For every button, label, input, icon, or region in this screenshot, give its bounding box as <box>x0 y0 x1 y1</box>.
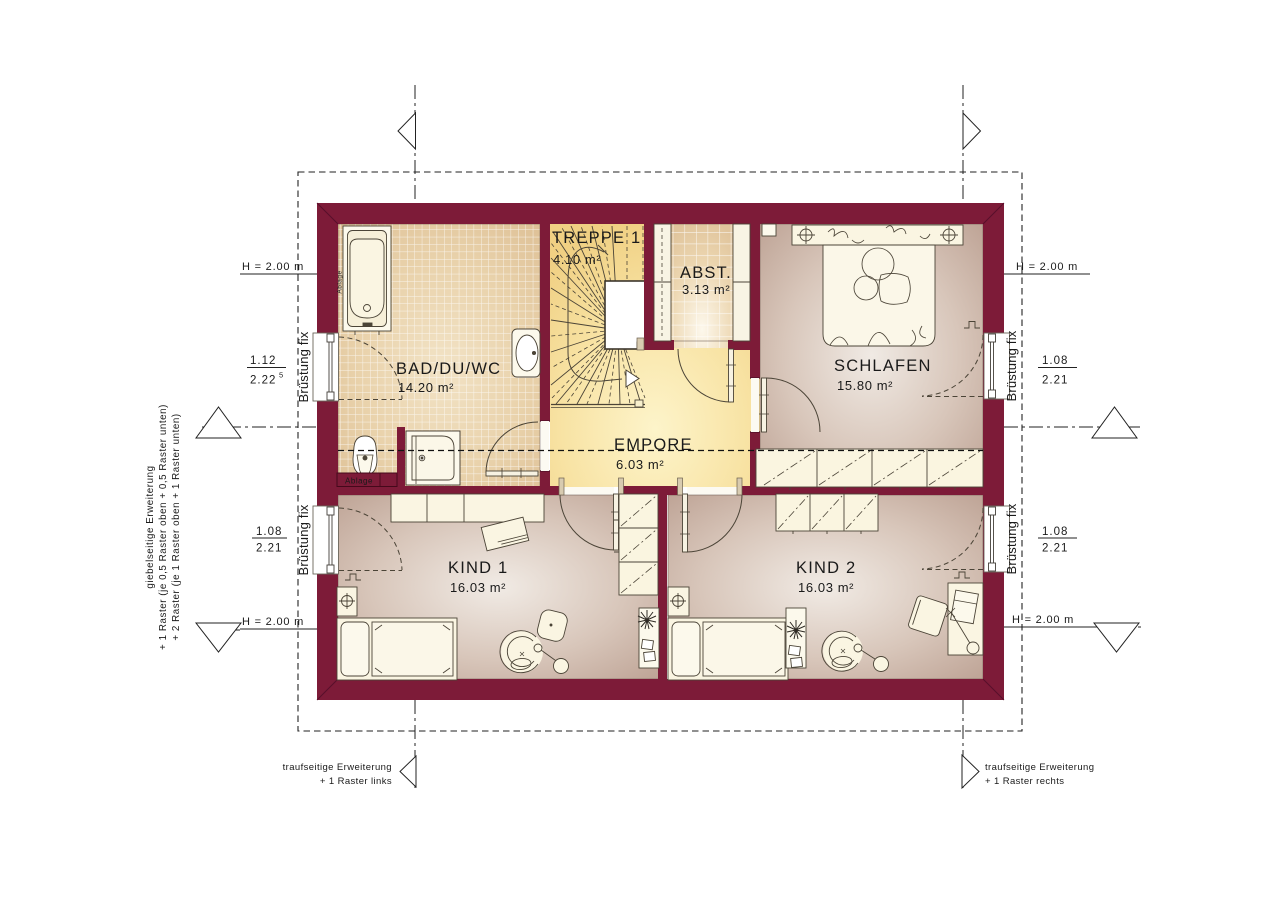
svg-text:Brüstung fix: Brüstung fix <box>1004 330 1019 401</box>
svg-text:+ 1 Raster links: + 1 Raster links <box>320 776 392 787</box>
svg-text:KIND 2: KIND 2 <box>796 559 856 577</box>
svg-text:4.10 m²: 4.10 m² <box>553 252 601 267</box>
svg-text:3.13 m²: 3.13 m² <box>682 282 730 297</box>
svg-text:SCHLAFEN: SCHLAFEN <box>834 357 932 375</box>
svg-text:giebelseitige Erweiterung: giebelseitige Erweiterung <box>145 465 156 588</box>
svg-text:H = 2.00 m: H = 2.00 m <box>242 616 304 628</box>
svg-text:ABST.: ABST. <box>680 264 732 282</box>
svg-text:15.80 m²: 15.80 m² <box>837 378 893 393</box>
svg-text:1.12: 1.12 <box>250 355 276 367</box>
svg-text:H = 2.00 m: H = 2.00 m <box>1012 614 1074 626</box>
svg-text:H = 2.00 m: H = 2.00 m <box>1016 261 1078 273</box>
svg-text:+ 1 Raster rechts: + 1 Raster rechts <box>985 776 1064 787</box>
svg-text:2.21: 2.21 <box>1042 543 1068 555</box>
svg-text:traufseitige Erweiterung: traufseitige Erweiterung <box>985 762 1094 773</box>
svg-text:2.21: 2.21 <box>1042 375 1068 387</box>
svg-text:5: 5 <box>279 371 283 380</box>
svg-text:6.03 m²: 6.03 m² <box>616 457 664 472</box>
svg-text:1.08: 1.08 <box>256 526 282 538</box>
svg-text:2.21: 2.21 <box>256 543 282 555</box>
svg-text:Ablage: Ablage <box>337 270 344 293</box>
svg-text:BAD/DU/WC: BAD/DU/WC <box>396 360 501 378</box>
svg-text:Brüstung fix: Brüstung fix <box>296 331 311 402</box>
svg-text:1.08: 1.08 <box>1042 526 1068 538</box>
svg-text:Brüstung fix: Brüstung fix <box>296 504 311 575</box>
svg-text:1.08: 1.08 <box>1042 355 1068 367</box>
svg-text:Ablage: Ablage <box>345 477 373 486</box>
svg-text:16.03 m²: 16.03 m² <box>798 580 854 595</box>
svg-text:2.22: 2.22 <box>250 375 276 387</box>
svg-text:TREPPE 1: TREPPE 1 <box>552 229 641 247</box>
svg-text:+ 1 Raster (je 0,5 Raster oben: + 1 Raster (je 0,5 Raster oben + 0,5 Ras… <box>158 404 169 650</box>
svg-text:Brüstung fix: Brüstung fix <box>1004 503 1019 574</box>
svg-text:KIND 1: KIND 1 <box>448 559 508 577</box>
svg-text:16.03 m²: 16.03 m² <box>450 580 506 595</box>
svg-text:H = 2.00 m: H = 2.00 m <box>242 261 304 273</box>
svg-text:EMPORE: EMPORE <box>614 436 693 454</box>
svg-text:+ 2 Raster (je 1 Raster oben +: + 2 Raster (je 1 Raster oben + 1 Raster … <box>171 413 182 640</box>
svg-text:14.20 m²: 14.20 m² <box>398 380 454 395</box>
svg-text:traufseitige Erweiterung: traufseitige Erweiterung <box>283 762 392 773</box>
